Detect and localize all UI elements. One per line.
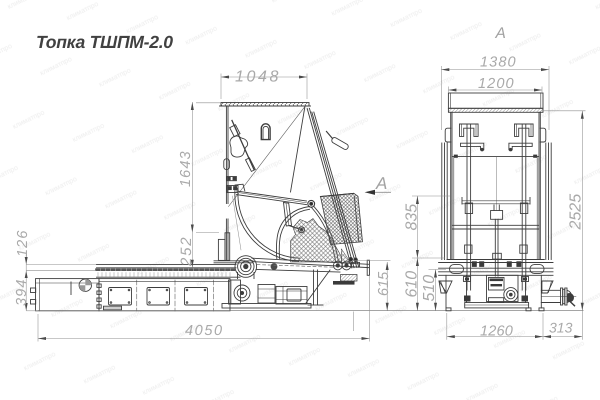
svg-text:610: 610	[404, 271, 421, 298]
svg-text:126: 126	[15, 230, 31, 258]
svg-text:313: 313	[549, 320, 573, 336]
svg-text:4050: 4050	[185, 323, 224, 339]
svg-text:1200: 1200	[478, 76, 515, 92]
svg-text:1643: 1643	[178, 150, 194, 187]
svg-text:835: 835	[404, 204, 421, 231]
svg-text:A: A	[495, 25, 506, 42]
svg-text:394: 394	[14, 279, 30, 307]
svg-text:2525: 2525	[568, 194, 585, 231]
svg-text:1260: 1260	[480, 324, 513, 340]
svg-text:252: 252	[178, 236, 195, 267]
svg-text:1048: 1048	[235, 69, 281, 86]
svg-text:Топка ТШПМ-2.0: Топка ТШПМ-2.0	[36, 32, 173, 52]
svg-text:A: A	[375, 174, 387, 193]
svg-text:1380: 1380	[480, 55, 517, 71]
svg-text:510: 510	[421, 275, 438, 302]
svg-text:615: 615	[376, 271, 392, 296]
